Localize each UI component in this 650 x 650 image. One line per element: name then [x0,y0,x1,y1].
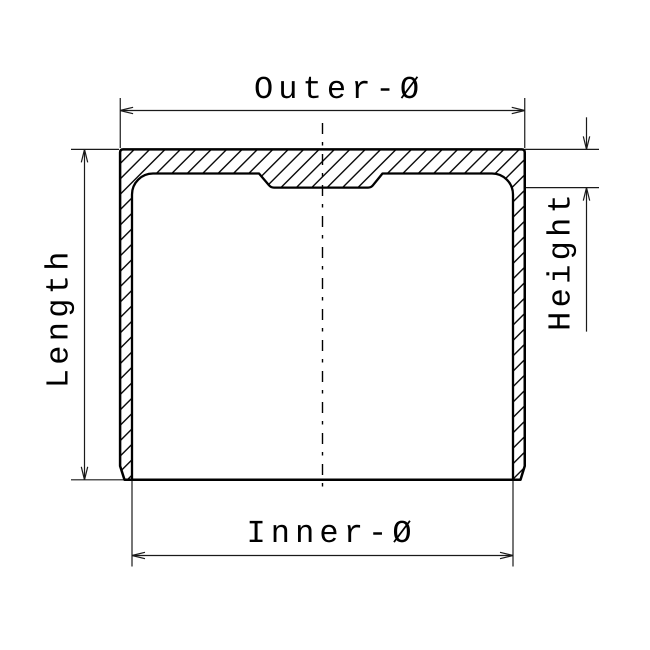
svg-text:Outer-Ø: Outer-Ø [254,71,424,108]
svg-text:Length: Length [41,247,78,388]
svg-text:Inner-Ø: Inner-Ø [247,515,417,552]
svg-text:Height: Height [542,190,579,331]
